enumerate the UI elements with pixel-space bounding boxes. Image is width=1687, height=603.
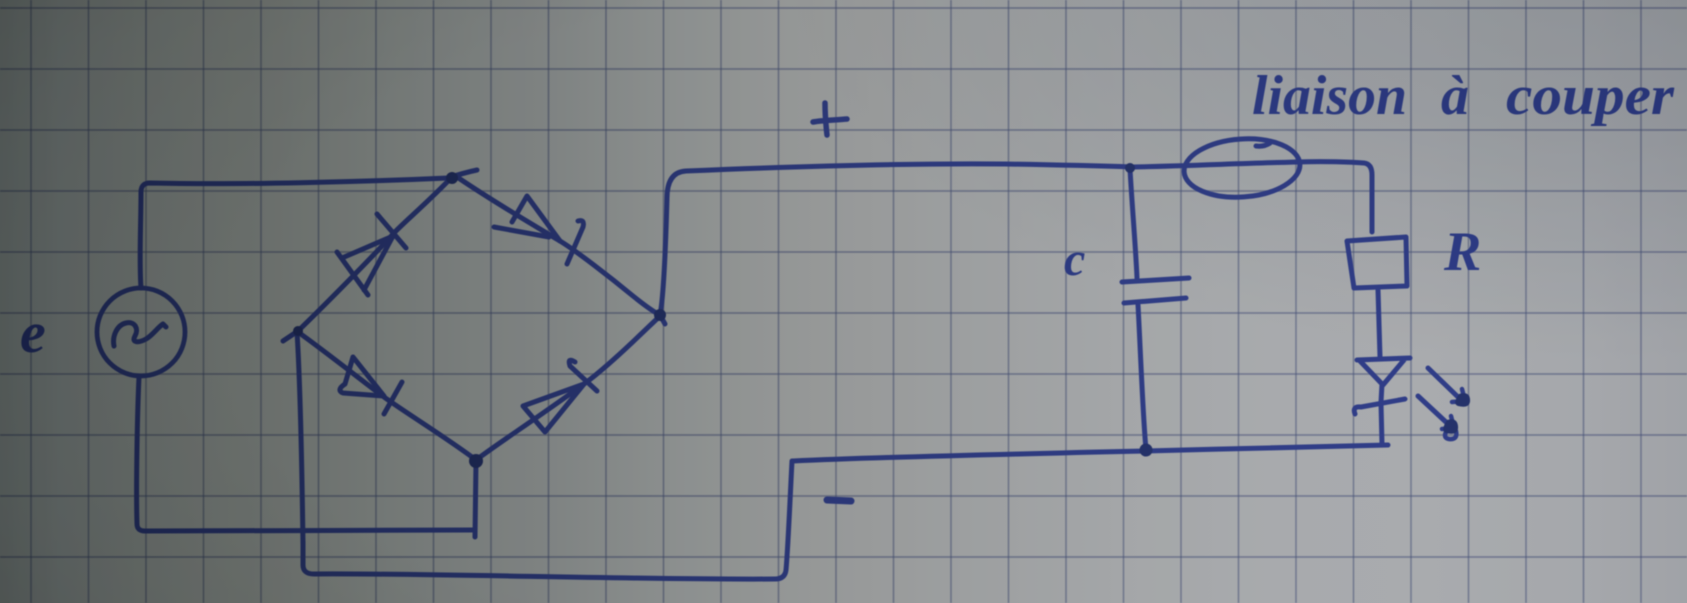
svg-text:liaison: liaison	[1252, 65, 1407, 127]
svg-text:couper: couper	[1506, 65, 1675, 127]
svg-text:e: e	[20, 300, 46, 365]
svg-text:c: c	[1064, 233, 1085, 286]
svg-text:à: à	[1441, 65, 1469, 127]
svg-text:R: R	[1443, 221, 1481, 283]
